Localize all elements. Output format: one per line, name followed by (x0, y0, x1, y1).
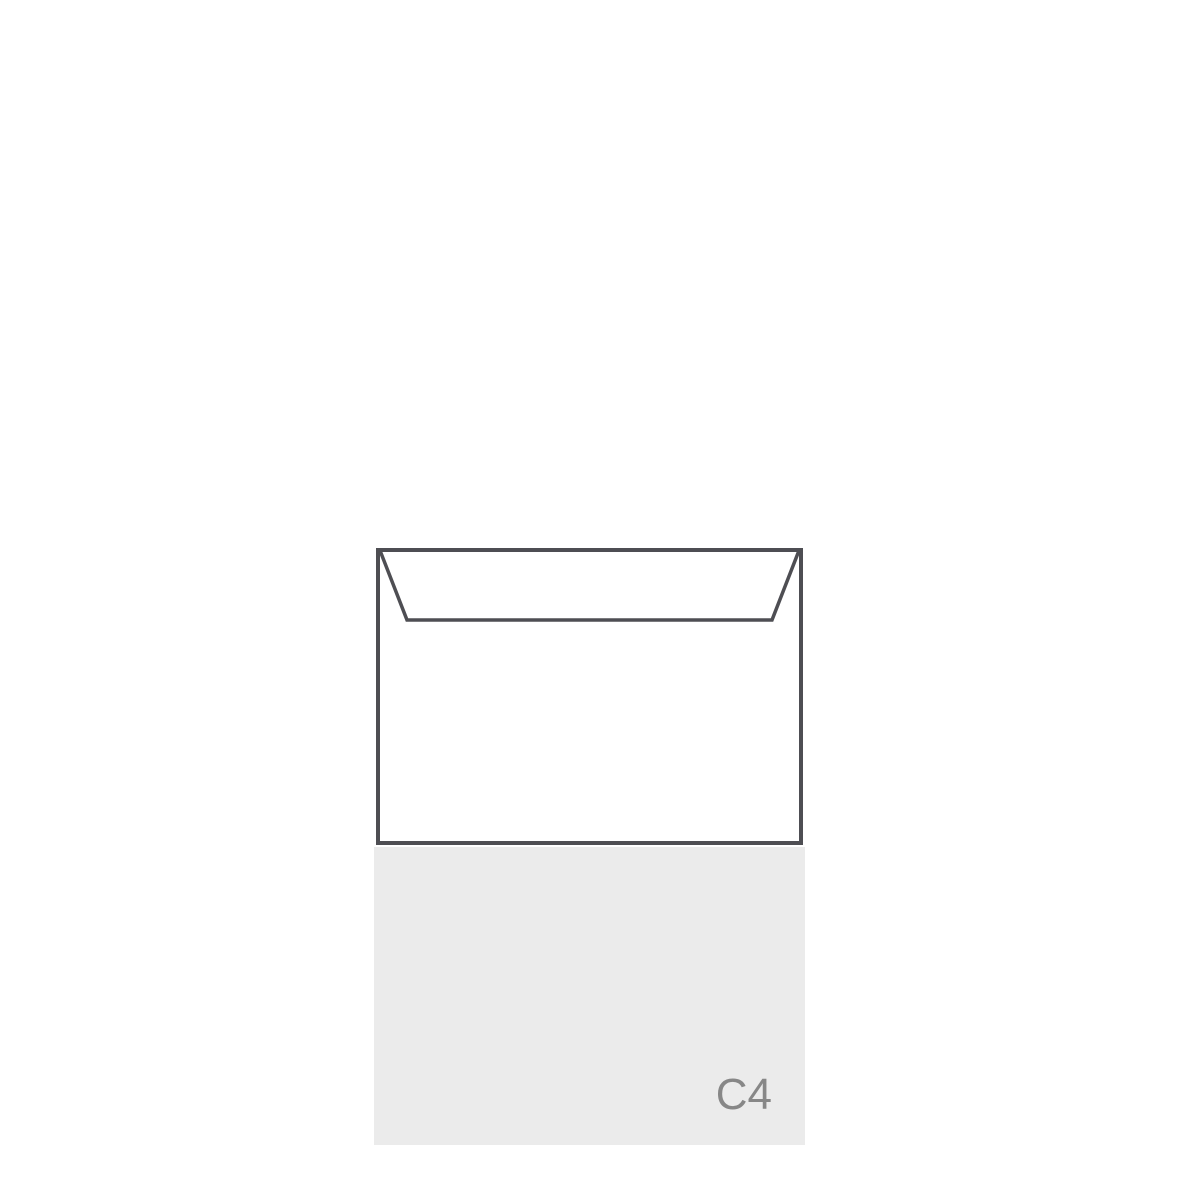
envelope-illustration (376, 548, 803, 845)
envelope-flap-icon (380, 552, 799, 841)
canvas: C4 (0, 0, 1181, 1181)
envelope-format-label: C4 (716, 1073, 772, 1117)
paper-size-panel: C4 (374, 847, 805, 1145)
